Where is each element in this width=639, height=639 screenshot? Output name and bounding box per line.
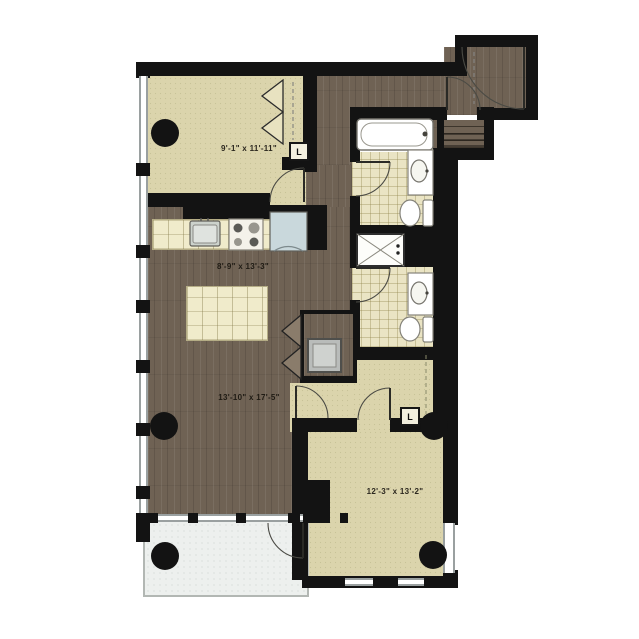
- door-bedroom-2: [358, 388, 390, 420]
- shower: [357, 234, 404, 266]
- washer-dryer: [308, 339, 341, 372]
- sink: [408, 150, 433, 195]
- door-coat-closet: [447, 77, 480, 110]
- bifold-washer-doors: [282, 315, 301, 379]
- toilet: [400, 317, 433, 342]
- door-bathroom-2: [356, 268, 390, 302]
- sink: [408, 273, 433, 315]
- closet-shelf-lines: [444, 134, 484, 146]
- living-room-dimensions: 13'-10" x 17'-5": [184, 392, 314, 404]
- bathtub: [357, 119, 433, 150]
- door-bathroom-1: [356, 162, 390, 196]
- door-bedroom-1: [270, 168, 304, 202]
- refrigerator: [270, 212, 307, 251]
- toilet: [400, 200, 433, 226]
- door-entry: [462, 47, 524, 109]
- linen-closet-label-1: L: [289, 142, 309, 161]
- linen-closet-label-2: L: [400, 407, 420, 426]
- stove: [229, 219, 263, 250]
- bifold-closet-doors: [262, 80, 293, 144]
- kitchen-sink: [190, 218, 220, 246]
- fixtures-layer: [0, 0, 639, 639]
- kitchen-dimensions: 8'-9" x 13'-3": [181, 261, 305, 273]
- door-balcony: [268, 523, 303, 558]
- bedroom-2-dimensions: 12'-3" x 13'-2": [330, 486, 460, 498]
- floor-plan: 9'-1" x 11'-11" 8'-9" x 13'-3" 13'-10" x…: [0, 0, 639, 639]
